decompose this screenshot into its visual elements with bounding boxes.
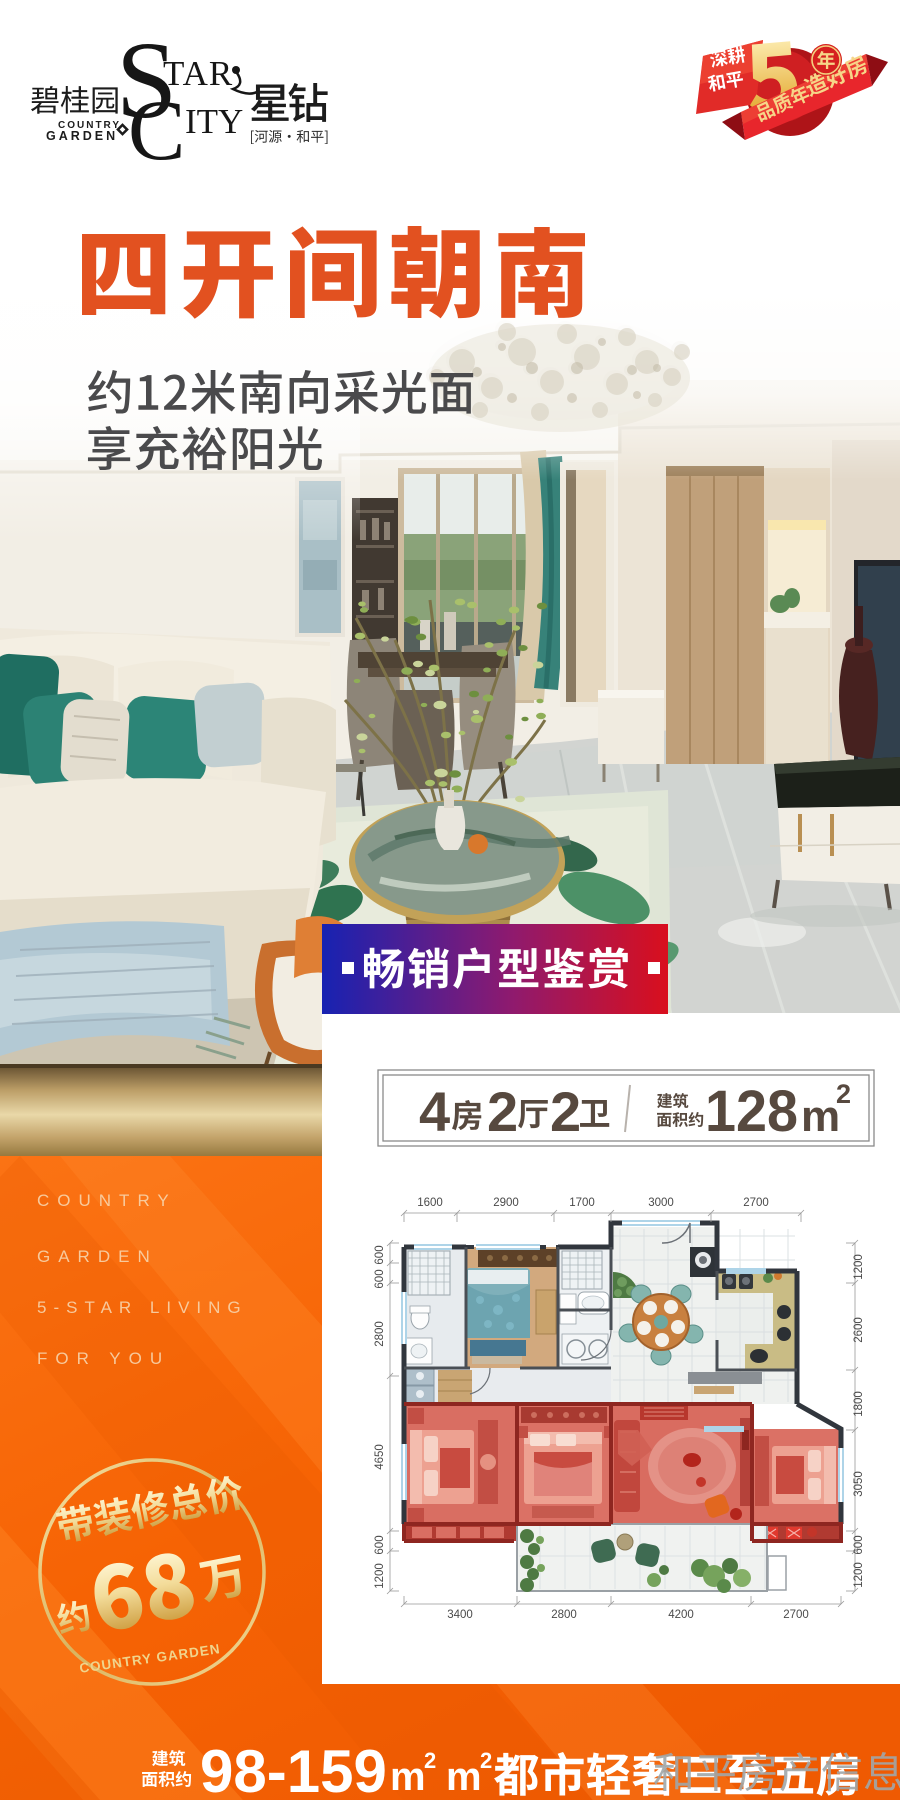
svg-text:1200: 1200 <box>853 1254 865 1280</box>
svg-text:3050: 3050 <box>853 1471 865 1497</box>
svg-text:m: m <box>446 1755 482 1799</box>
svg-text:1800: 1800 <box>853 1391 865 1417</box>
svg-text:2800: 2800 <box>551 1609 577 1621</box>
svg-text:3400: 3400 <box>447 1609 473 1621</box>
svg-text:600: 600 <box>853 1535 865 1554</box>
svg-text:128: 128 <box>705 1079 798 1144</box>
svg-text:TAR: TAR <box>163 54 233 93</box>
svg-text:2: 2 <box>424 1748 436 1773</box>
svg-text:4: 4 <box>419 1080 450 1143</box>
svg-text:1600: 1600 <box>417 1197 443 1209</box>
svg-text:COUNTRY: COUNTRY <box>37 1191 177 1210</box>
svg-text:2700: 2700 <box>743 1197 769 1209</box>
svg-text:FOR YOU: FOR YOU <box>37 1349 170 1368</box>
svg-text:4200: 4200 <box>668 1609 694 1621</box>
svg-text:GARDEN: GARDEN <box>37 1247 158 1266</box>
svg-text:600: 600 <box>374 1245 386 1264</box>
svg-text:98-159: 98-159 <box>200 1738 387 1800</box>
svg-text:2: 2 <box>480 1748 492 1773</box>
svg-text:4650: 4650 <box>374 1444 386 1470</box>
svg-text:2800: 2800 <box>374 1321 386 1347</box>
svg-text:2700: 2700 <box>783 1609 809 1621</box>
svg-text:5-STAR LIVING: 5-STAR LIVING <box>37 1298 248 1317</box>
svg-text:2600: 2600 <box>853 1317 865 1343</box>
svg-text:ITY: ITY <box>185 102 243 141</box>
svg-text:GARDEN: GARDEN <box>46 129 118 143</box>
svg-text:2: 2 <box>487 1080 518 1143</box>
svg-text:2900: 2900 <box>493 1197 519 1209</box>
svg-text:600: 600 <box>374 1535 386 1554</box>
svg-text:m: m <box>801 1092 840 1141</box>
svg-text:1700: 1700 <box>569 1197 595 1209</box>
svg-text:2: 2 <box>550 1080 581 1143</box>
svg-text:600: 600 <box>374 1269 386 1288</box>
svg-text:2: 2 <box>836 1079 851 1109</box>
svg-text:C: C <box>128 82 185 178</box>
svg-text:3000: 3000 <box>648 1197 674 1209</box>
svg-text:m: m <box>390 1755 426 1799</box>
svg-text:1200: 1200 <box>374 1563 386 1589</box>
svg-text:1200: 1200 <box>853 1562 865 1588</box>
